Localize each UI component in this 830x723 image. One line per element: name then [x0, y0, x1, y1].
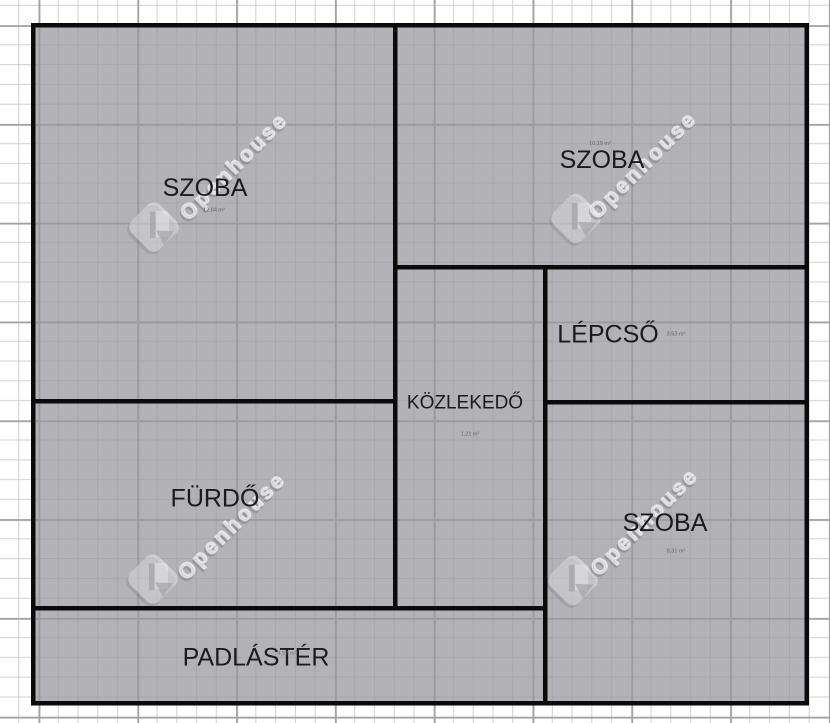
svg-text:FÜRDŐ: FÜRDŐ [171, 484, 260, 513]
svg-text:4,57 m²: 4,57 m² [278, 651, 297, 657]
svg-text:8,31 m²: 8,31 m² [667, 549, 686, 555]
svg-text:3,53 m²: 3,53 m² [667, 332, 686, 338]
svg-text:SZOBA: SZOBA [623, 509, 708, 537]
svg-text:PADLÁSTÉR: PADLÁSTÉR [183, 643, 330, 672]
svg-text:SZOBA: SZOBA [163, 174, 248, 202]
svg-text:LÉPCSŐ: LÉPCSŐ [557, 320, 658, 349]
svg-text:KÖZLEKEDŐ: KÖZLEKEDŐ [407, 392, 523, 414]
svg-text:SZOBA: SZOBA [560, 146, 645, 174]
svg-text:1,21 m²: 1,21 m² [461, 432, 480, 438]
svg-text:12,84 m²: 12,84 m² [203, 208, 225, 214]
